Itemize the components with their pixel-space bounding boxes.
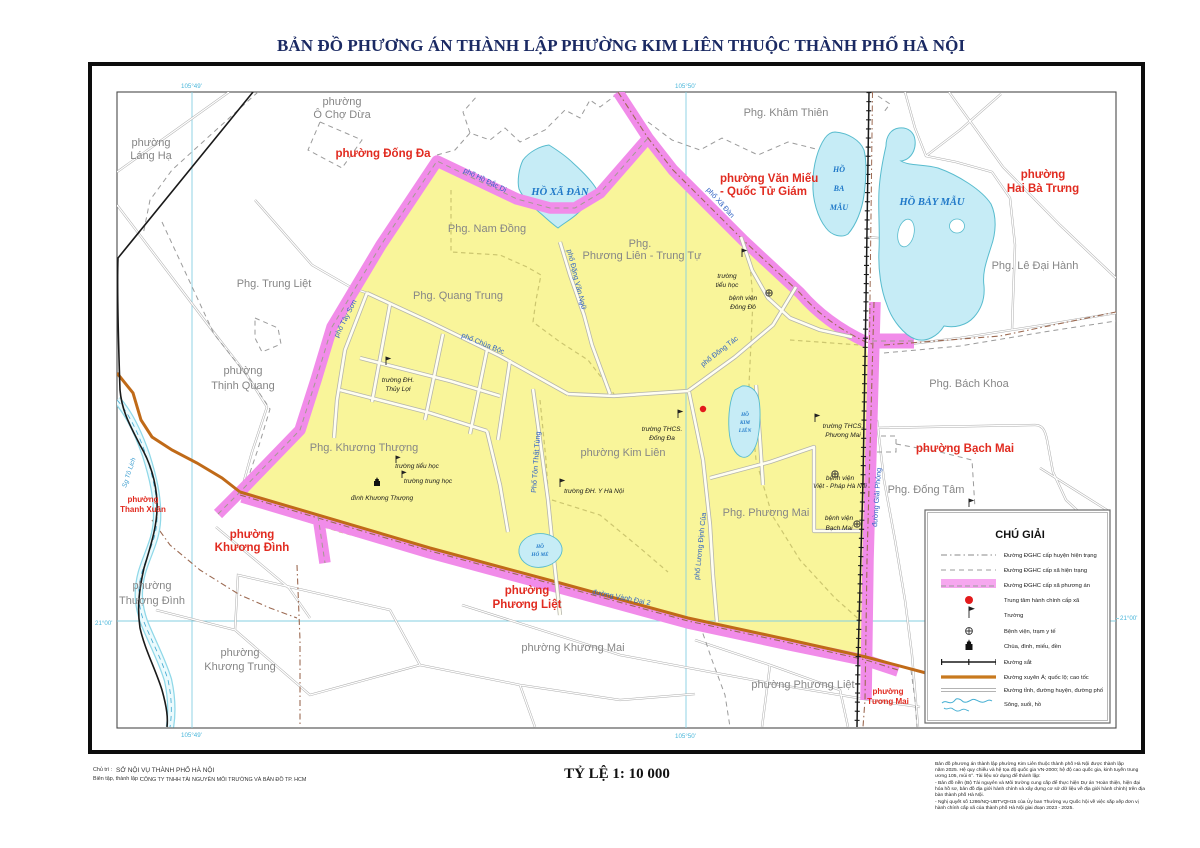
svg-text:phường Đống Đa: phường Đống Đa — [335, 148, 431, 160]
svg-text:phường Văn Miếu: phường Văn Miếu — [720, 173, 818, 185]
svg-text:phường: phường — [505, 585, 550, 597]
svg-text:Đường ĐGHC cấp xã phương án: Đường ĐGHC cấp xã phương án — [1004, 583, 1090, 589]
svg-text:Đông Đô: Đông Đô — [730, 304, 756, 311]
svg-text:Thượng Đình: Thượng Đình — [119, 595, 185, 607]
svg-text:phường Bạch Mai: phường Bạch Mai — [916, 443, 1014, 455]
svg-text:Đường ĐGHC cấp huyện hiện trạn: Đường ĐGHC cấp huyện hiện trạng — [1004, 553, 1097, 559]
svg-text:Láng Hạ: Láng Hạ — [130, 150, 172, 162]
svg-text:Việt - Pháp Hà Nội: Việt - Pháp Hà Nội — [813, 483, 867, 490]
svg-text:- Nghị quyết số 1286/NQ-UBTVQH: - Nghị quyết số 1286/NQ-UBTVQH15 của Ủy … — [935, 798, 1139, 805]
svg-text:Đường ĐGHC cấp xã hiện trạng: Đường ĐGHC cấp xã hiện trạng — [1004, 568, 1087, 574]
svg-text:bàn thành phố Hà Nội.: bàn thành phố Hà Nội. — [935, 792, 984, 798]
svg-text:Phg. Đống Tâm: Phg. Đống Tâm — [888, 484, 965, 496]
svg-text:phường: phường — [131, 137, 170, 149]
svg-text:bệnh viện: bệnh viện — [825, 515, 854, 522]
svg-text:HỒ XÃ ĐÀN: HỒ XÃ ĐÀN — [530, 185, 589, 198]
svg-text:105°50': 105°50' — [675, 733, 696, 740]
svg-text:trường: trường — [717, 273, 737, 280]
svg-text:- Bản đồ nền (Bộ Tài nguyên và: - Bản đồ nền (Bộ Tài nguyên và Môi trườn… — [935, 779, 1140, 786]
svg-text:Phương Liên - Trung Tự: Phương Liên - Trung Tự — [583, 250, 703, 262]
svg-text:HỒ: HỒ — [535, 542, 544, 550]
svg-text:Thanh Xuân: Thanh Xuân — [120, 505, 166, 514]
svg-text:105°49': 105°49' — [181, 83, 202, 90]
svg-text:phường Kim Liên: phường Kim Liên — [581, 447, 666, 459]
svg-text:- Quốc Tử Giám: - Quốc Tử Giám — [720, 186, 807, 198]
svg-text:Bệnh viện, trạm y tế: Bệnh viện, trạm y tế — [1004, 629, 1056, 635]
svg-text:trường ĐH. Y Hà Nội: trường ĐH. Y Hà Nội — [564, 488, 624, 495]
svg-text:phường Phương Liệt: phường Phương Liệt — [751, 679, 854, 691]
svg-text:21°00': 21°00' — [95, 620, 112, 627]
svg-text:Phương Liệt: Phương Liệt — [493, 599, 562, 611]
svg-text:CÔNG TY TNHH TÀI NGUYÊN MÔI TR: CÔNG TY TNHH TÀI NGUYÊN MÔI TRƯỜNG VÀ BẢ… — [140, 775, 307, 783]
svg-text:Phg. Trung Liệt: Phg. Trung Liệt — [237, 278, 312, 290]
svg-text:Phg. Phương Mai: Phg. Phương Mai — [723, 507, 810, 519]
svg-text:Bạch Mai: Bạch Mai — [825, 525, 853, 532]
svg-text:trường THCS.: trường THCS. — [642, 426, 683, 433]
svg-text:SỞ NỘI VỤ THÀNH PHỐ HÀ NỘI: SỞ NỘI VỤ THÀNH PHỐ HÀ NỘI — [116, 764, 214, 774]
svg-text:Chủ trì :: Chủ trì : — [93, 766, 112, 773]
svg-text:HỒ: HỒ — [740, 410, 749, 418]
svg-text:Thịnh Quang: Thịnh Quang — [211, 380, 275, 392]
svg-text:105°49': 105°49' — [181, 732, 202, 739]
svg-text:Khương Đình: Khương Đình — [215, 542, 290, 554]
svg-text:105°50': 105°50' — [675, 83, 696, 90]
svg-text:bệnh viện: bệnh viện — [826, 475, 855, 482]
svg-text:trường THCS.: trường THCS. — [823, 423, 864, 430]
svg-text:ương 105, múi 6°. Tài liệu sử: ương 105, múi 6°. Tài liệu sử dụng để th… — [935, 772, 1040, 779]
svg-text:Ô Chợ Dừa: Ô Chợ Dừa — [313, 108, 371, 121]
svg-text:BA: BA — [833, 184, 845, 193]
svg-text:đình Khương Thượng: đình Khương Thượng — [351, 495, 414, 502]
svg-text:tiểu học: tiểu học — [716, 281, 740, 289]
svg-text:21°00': 21°00' — [1120, 615, 1137, 622]
svg-text:Phg.: Phg. — [629, 238, 652, 250]
svg-text:Biên tập, thành lập :: Biên tập, thành lập : — [93, 776, 141, 782]
svg-text:Khương Trung: Khương Trung — [204, 661, 275, 673]
svg-text:trường ĐH.: trường ĐH. — [382, 377, 414, 384]
svg-text:Phg. Quang Trung: Phg. Quang Trung — [413, 290, 503, 302]
svg-text:phường: phường — [872, 687, 903, 696]
svg-text:Tương Mai: Tương Mai — [867, 697, 909, 706]
svg-text:hành chính cấp xã của thành ph: hành chính cấp xã của thành phố Hà Nội g… — [935, 804, 1074, 811]
svg-text:phường: phường — [132, 580, 171, 592]
svg-text:Đường xuyên Á; quốc lộ; cao tố: Đường xuyên Á; quốc lộ; cao tốc — [1004, 674, 1089, 681]
svg-text:MẪU: MẪU — [829, 202, 849, 212]
svg-text:Trung tâm hành chính cấp xã: Trung tâm hành chính cấp xã — [1004, 598, 1080, 604]
svg-text:Hai Bà Trưng: Hai Bà Trưng — [1007, 183, 1079, 195]
svg-text:BẢN ĐỒ PHƯƠNG ÁN THÀNH LẬP PH: BẢN ĐỒ PHƯƠNG ÁN THÀNH LẬP PHƯỜNG KIM LI… — [277, 35, 965, 55]
svg-text:Phg. Nam Đồng: Phg. Nam Đồng — [448, 223, 526, 235]
svg-text:Phương Mai: Phương Mai — [825, 432, 861, 439]
svg-text:phường: phường — [220, 647, 259, 659]
svg-text:Phg. Lê Đại Hành: Phg. Lê Đại Hành — [992, 260, 1079, 272]
svg-text:phường Khương Mai: phường Khương Mai — [521, 642, 624, 654]
svg-text:trường trung học: trường trung học — [404, 478, 453, 485]
svg-text:năm 2025. Hệ quy chiếu và hệ t: năm 2025. Hệ quy chiếu và hệ tọa độ quốc… — [935, 767, 1139, 773]
svg-text:bệnh viện: bệnh viện — [729, 295, 758, 302]
svg-text:LIÊN: LIÊN — [738, 426, 752, 434]
svg-text:phường: phường — [127, 495, 158, 504]
svg-text:trường tiểu học: trường tiểu học — [395, 462, 440, 470]
svg-text:phường: phường — [1021, 169, 1066, 181]
svg-text:Phg. Khương Thượng: Phg. Khương Thượng — [310, 442, 418, 454]
svg-text:TỶ LỆ 1: 10 000: TỶ LỆ 1: 10 000 — [564, 765, 670, 782]
svg-text:Đường sắt: Đường sắt — [1004, 659, 1032, 666]
svg-text:Bản đồ phương án thành lập phư: Bản đồ phương án thành lập phường Kim Li… — [935, 761, 1124, 767]
svg-text:phường: phường — [322, 96, 361, 108]
svg-text:CHÚ GIẢI: CHÚ GIẢI — [995, 528, 1045, 541]
svg-text:KIM: KIM — [739, 420, 750, 426]
svg-text:HỒ: HỒ — [832, 164, 845, 174]
svg-text:Chùa, đình, miếu, đền: Chùa, đình, miếu, đền — [1004, 644, 1061, 650]
svg-text:Đống Đa: Đống Đa — [649, 434, 675, 442]
svg-text:Phg. Bách Khoa: Phg. Bách Khoa — [929, 378, 1009, 390]
svg-text:Đường tỉnh, đường huyện, đường: Đường tỉnh, đường huyện, đường phố — [1004, 687, 1104, 694]
svg-text:HỐ MẺ: HỐ MẺ — [530, 550, 549, 558]
svg-text:Sông, suối, hồ: Sông, suối, hồ — [1004, 702, 1041, 708]
svg-text:Thủy Lợi: Thủy Lợi — [385, 385, 411, 393]
svg-text:HỒ BẢY MẪU: HỒ BẢY MẪU — [899, 195, 966, 208]
svg-text:hóa hồ sơ, bản đồ địa giới hàn: hóa hồ sơ, bản đồ địa giới hành chính và… — [935, 785, 1145, 792]
svg-text:phường: phường — [223, 365, 262, 377]
svg-text:Trường: Trường — [1004, 613, 1023, 619]
svg-text:Phg. Khâm Thiên: Phg. Khâm Thiên — [744, 107, 829, 119]
svg-text:phường: phường — [230, 529, 275, 541]
